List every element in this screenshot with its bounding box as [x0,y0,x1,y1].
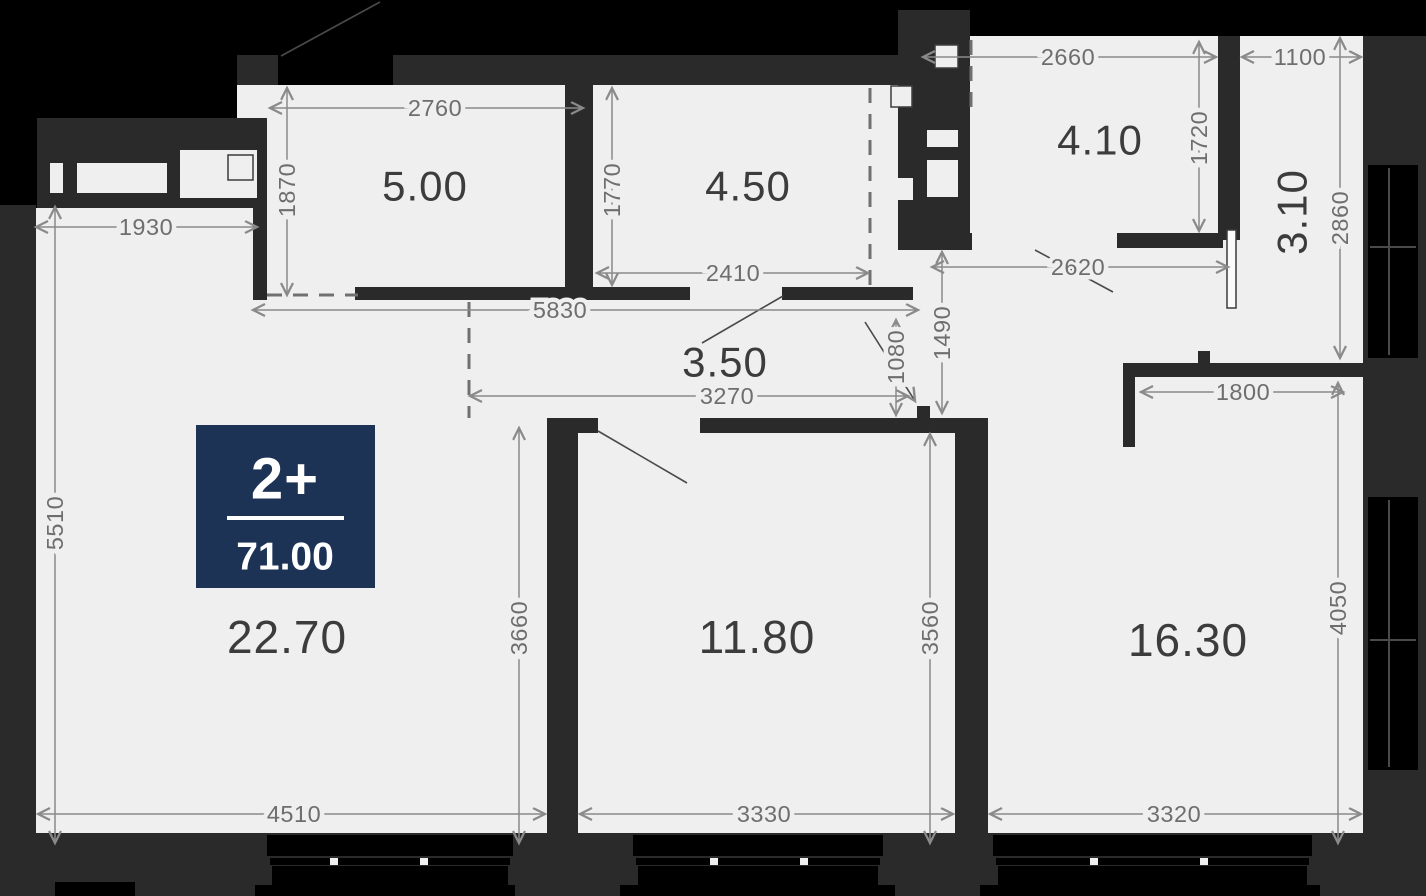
room-area-label: 3.50 [682,339,768,386]
dimension-label: 2620 [1051,254,1105,280]
dimension-label: 4510 [267,801,321,827]
room-area-label: 4.50 [705,163,791,210]
dimension-label: 1870 [274,163,300,217]
dimension-label: 2660 [1041,44,1095,70]
dimension-label: 3270 [700,383,754,409]
apartment-badge: 2+ 71.00 [196,425,375,588]
dimension-label: 1490 [929,306,955,360]
badge-total-area: 71.00 [236,536,334,579]
dimension-label: 1100 [1274,44,1327,70]
dimension-label: 1080 [883,330,909,384]
dimension-label: 2860 [1327,191,1353,245]
dimension-label: 5510 [42,496,68,550]
room-area-label: 3.10 [1269,169,1316,255]
dimension-label: 1770 [599,163,625,217]
dimension-label: 4050 [1325,581,1351,635]
open-door-leaf [1227,230,1236,308]
floor-plan-drawing: 2760 1870 1930 5510 2410 1770 5830 3270 … [0,0,1426,896]
dimension-label: 1930 [119,214,173,240]
floor-plan: 2760 1870 1930 5510 2410 1770 5830 3270 … [0,0,1426,896]
room-area-label: 22.70 [227,611,347,663]
room-area-label: 16.30 [1128,614,1248,666]
dimension-label: 5830 [533,297,587,323]
dimension-label: 3660 [506,601,532,655]
dimension-label: 2760 [408,95,462,121]
vent-square-icon [228,155,253,180]
dimension-label: 3330 [737,801,791,827]
room-area-label: 4.10 [1057,117,1143,164]
dimension-label: 3320 [1147,801,1201,827]
dimension-label: 2410 [706,260,760,286]
room-area-label: 5.00 [382,163,468,210]
dimension-label: 3560 [917,601,943,655]
badge-rooms-label: 2+ [251,447,319,512]
dimension-label: 1800 [1216,379,1270,405]
dimension-label: 1720 [1186,111,1212,165]
room-area-label: 11.80 [699,611,816,663]
vent-square-icon [891,86,912,107]
